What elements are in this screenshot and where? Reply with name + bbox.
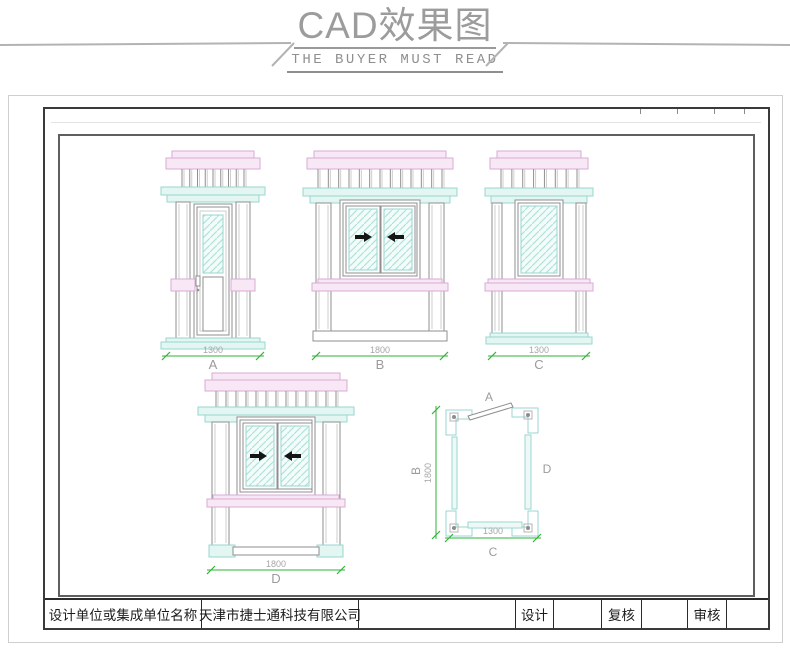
ruler-tick (714, 109, 715, 114)
plan-wall-left (452, 437, 457, 509)
plan-label-b: B (409, 467, 423, 475)
plan-label-d: D (543, 462, 552, 476)
plan-width-dimension: 1300 (483, 526, 503, 536)
audit-value-cell (727, 600, 768, 628)
view-b-dimension: 1800 (370, 345, 390, 355)
plan-label-a: A (485, 390, 493, 404)
blank-cell (359, 600, 516, 628)
review-label-cell: 复核 (602, 600, 642, 628)
review-value-cell (642, 600, 688, 628)
elevation-view-b: 1800B (303, 151, 457, 372)
header: CAD效果图 THE BUYER MUST READ (0, 0, 790, 95)
company-label: 设计单位或集成单位名称 (49, 604, 198, 624)
ruler-tick (744, 109, 745, 114)
view-c-label: C (534, 357, 543, 372)
view-d-label: D (271, 571, 280, 586)
elevation-view-a: 1300A (161, 151, 265, 372)
elevation-view-c: 1300C (485, 151, 593, 372)
view-d-dimension: 1800 (266, 559, 286, 569)
view-b-label: B (376, 357, 385, 372)
design-label: 设计 (521, 604, 548, 624)
elevation-view-d: 1800D (198, 373, 354, 586)
window-glass (384, 209, 412, 270)
title-block: 设计单位或集成单位名称 天津市捷士通科技有限公司 设计 复核 审核 (45, 598, 768, 628)
view-a-dimension: 1300 (203, 345, 223, 355)
door-panel (203, 277, 223, 331)
door-glass (203, 215, 223, 273)
plan-label-c: C (489, 545, 498, 559)
plan-wall-right (525, 435, 531, 509)
view-a-label: A (209, 357, 218, 372)
ruler-tick (677, 109, 678, 114)
design-value-cell (554, 600, 602, 628)
review-label: 复核 (608, 604, 635, 624)
drawing-sheet: 1300A1800B1300C1800DAD1800B1300C 设计单位或集成… (43, 107, 770, 630)
content-border: 1300A1800B1300C1800DAD1800B1300C 设计单位或集成… (8, 95, 783, 643)
audit-label: 审核 (694, 604, 721, 624)
page: CAD效果图 THE BUYER MUST READ 1300A1800B130… (0, 0, 790, 665)
fixed-window-glass (521, 206, 557, 273)
page-subtitle: THE BUYER MUST READ (287, 52, 502, 73)
company-name: 天津市捷士通科技有限公司 (199, 604, 361, 624)
plan-height-dimension: 1800 (423, 463, 433, 483)
plan-door-leaf (468, 403, 513, 420)
cad-drawing: 1300A1800B1300C1800DAD1800B1300C (58, 134, 755, 597)
audit-label-cell: 审核 (688, 600, 727, 628)
window-glass (349, 209, 377, 270)
plan-view: AD1800B1300C (409, 390, 552, 559)
ruler-tick (640, 109, 641, 114)
company-name-cell: 天津市捷士通科技有限公司 (202, 600, 359, 628)
company-label-cell: 设计单位或集成单位名称 (45, 600, 202, 628)
design-label-cell: 设计 (516, 600, 554, 628)
page-title: CAD效果图 (294, 6, 495, 49)
door-handle-icon (196, 276, 200, 286)
sheet-top-divider (51, 122, 761, 123)
view-c-dimension: 1300 (529, 345, 549, 355)
plan-corner-post (512, 408, 538, 433)
